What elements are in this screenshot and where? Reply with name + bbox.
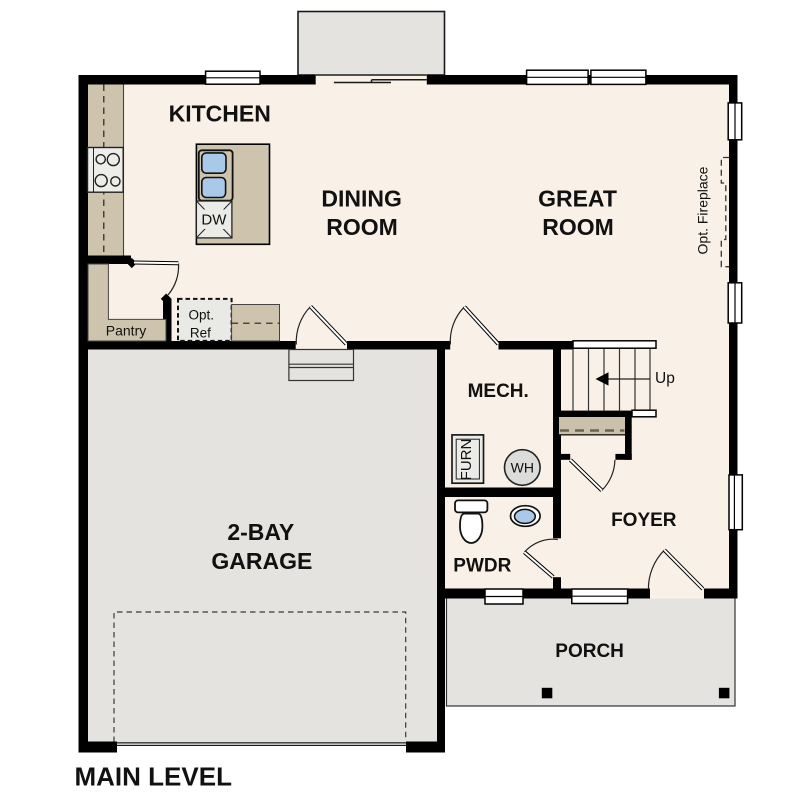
svg-text:KITCHEN: KITCHEN <box>169 100 271 126</box>
svg-text:MAIN LEVEL: MAIN LEVEL <box>75 762 233 792</box>
svg-text:Up: Up <box>655 370 675 387</box>
svg-text:ROOM: ROOM <box>326 214 398 240</box>
svg-text:FOYER: FOYER <box>611 510 677 531</box>
svg-text:Ref: Ref <box>190 326 211 341</box>
svg-text:DW: DW <box>201 212 227 229</box>
svg-text:WH: WH <box>511 460 534 476</box>
svg-text:GREAT: GREAT <box>538 186 617 212</box>
svg-text:Opt. Fireplace: Opt. Fireplace <box>695 166 711 254</box>
svg-text:Pantry: Pantry <box>106 323 146 339</box>
svg-text:PORCH: PORCH <box>555 641 624 662</box>
svg-text:PWDR: PWDR <box>453 556 511 577</box>
svg-text:DINING: DINING <box>321 186 402 212</box>
svg-text:Opt.: Opt. <box>188 308 214 323</box>
svg-text:FURN: FURN <box>458 439 475 481</box>
svg-text:ROOM: ROOM <box>542 214 614 240</box>
svg-text:MECH.: MECH. <box>468 381 529 402</box>
svg-text:GARAGE: GARAGE <box>211 548 312 574</box>
svg-text:2-BAY: 2-BAY <box>227 519 294 545</box>
